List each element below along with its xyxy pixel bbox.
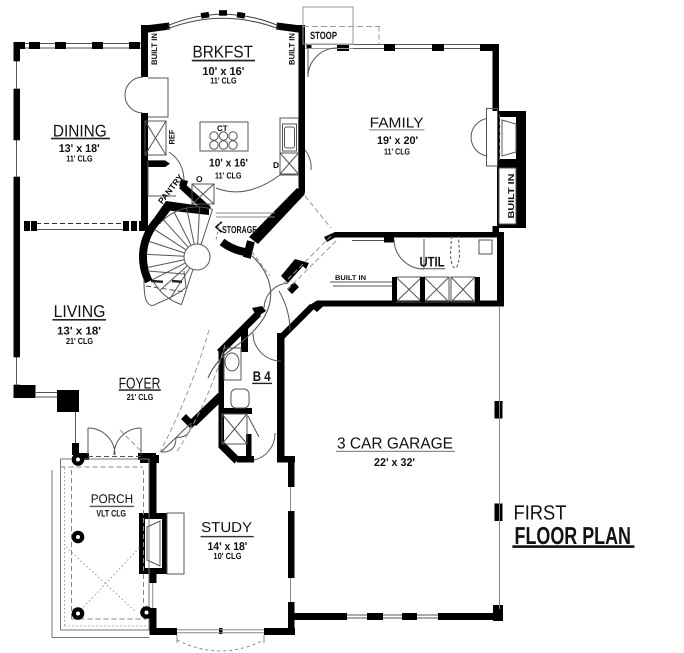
svg-text:22' x 32': 22' x 32' — [374, 457, 415, 469]
svg-text:11' CLG: 11' CLG — [210, 75, 236, 85]
svg-text:FIRST: FIRST — [514, 501, 567, 524]
svg-text:FAMILY: FAMILY — [370, 116, 424, 132]
svg-text:D: D — [273, 160, 279, 170]
svg-text:CT: CT — [217, 124, 228, 133]
svg-text:STORAGE: STORAGE — [222, 225, 257, 236]
svg-text:21' CLG: 21' CLG — [66, 336, 93, 346]
svg-text:BRKFST: BRKFST — [193, 43, 254, 62]
svg-text:VLT CLG: VLT CLG — [96, 508, 126, 519]
svg-text:LIVING: LIVING — [54, 302, 106, 321]
svg-text:BUILT IN: BUILT IN — [506, 174, 516, 219]
svg-text:19' x 20': 19' x 20' — [377, 135, 418, 147]
svg-text:B 4: B 4 — [253, 368, 271, 384]
svg-text:O: O — [196, 174, 203, 184]
svg-text:UTIL: UTIL — [420, 253, 445, 269]
svg-text:DINING: DINING — [53, 121, 107, 140]
svg-text:11' CLG: 11' CLG — [384, 147, 410, 157]
svg-text:10' x 16': 10' x 16' — [209, 158, 248, 170]
svg-text:BUILT IN: BUILT IN — [335, 275, 366, 282]
svg-text:21' CLG: 21' CLG — [127, 392, 154, 402]
svg-text:PORCH: PORCH — [91, 492, 134, 506]
svg-text:3 CAR GARAGE: 3 CAR GARAGE — [337, 436, 453, 453]
svg-text:10' CLG: 10' CLG — [213, 551, 241, 561]
svg-text:11' CLG: 11' CLG — [215, 171, 242, 181]
svg-text:REF: REF — [168, 129, 177, 144]
svg-text:BUILT IN: BUILT IN — [288, 33, 297, 65]
svg-text:BUILT IN: BUILT IN — [150, 33, 159, 65]
svg-text:11' CLG: 11' CLG — [66, 153, 92, 163]
svg-text:STUDY: STUDY — [201, 520, 252, 536]
svg-text:STOOP: STOOP — [310, 30, 337, 42]
